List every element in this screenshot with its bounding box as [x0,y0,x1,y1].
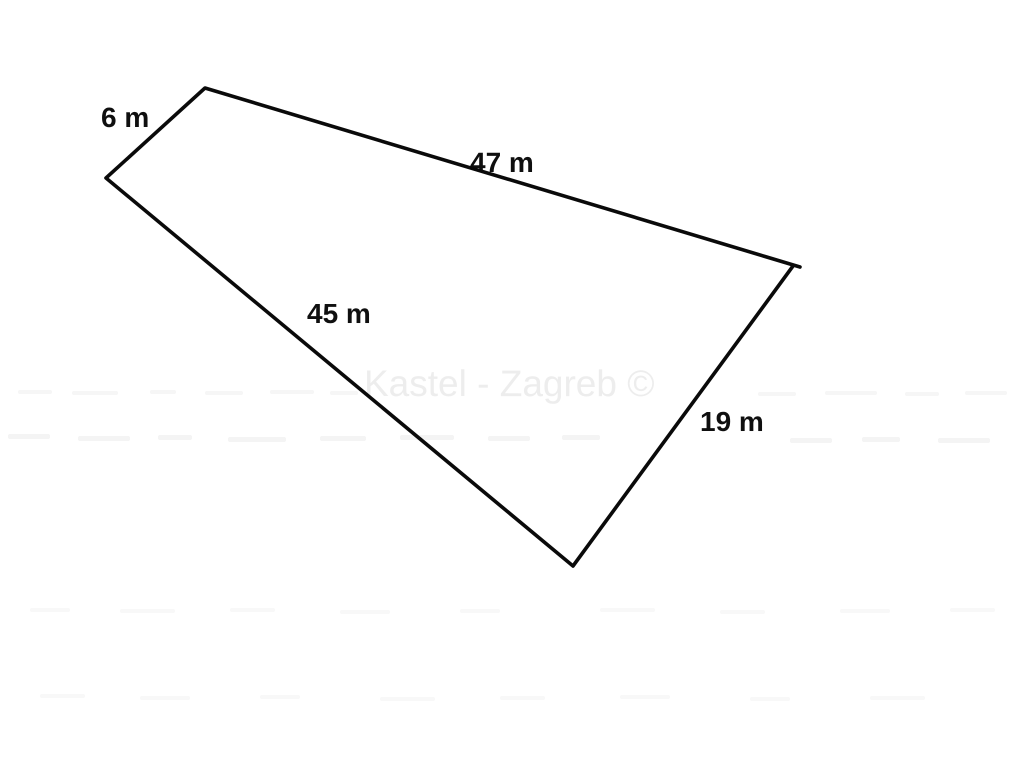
svg-text:45 m: 45 m [307,298,371,329]
svg-text:6 m: 6 m [101,102,149,133]
svg-text:47 m: 47 m [470,147,534,178]
svg-text:Kastel - Zagreb ©: Kastel - Zagreb © [364,363,655,404]
svg-text:19 m: 19 m [700,406,764,437]
